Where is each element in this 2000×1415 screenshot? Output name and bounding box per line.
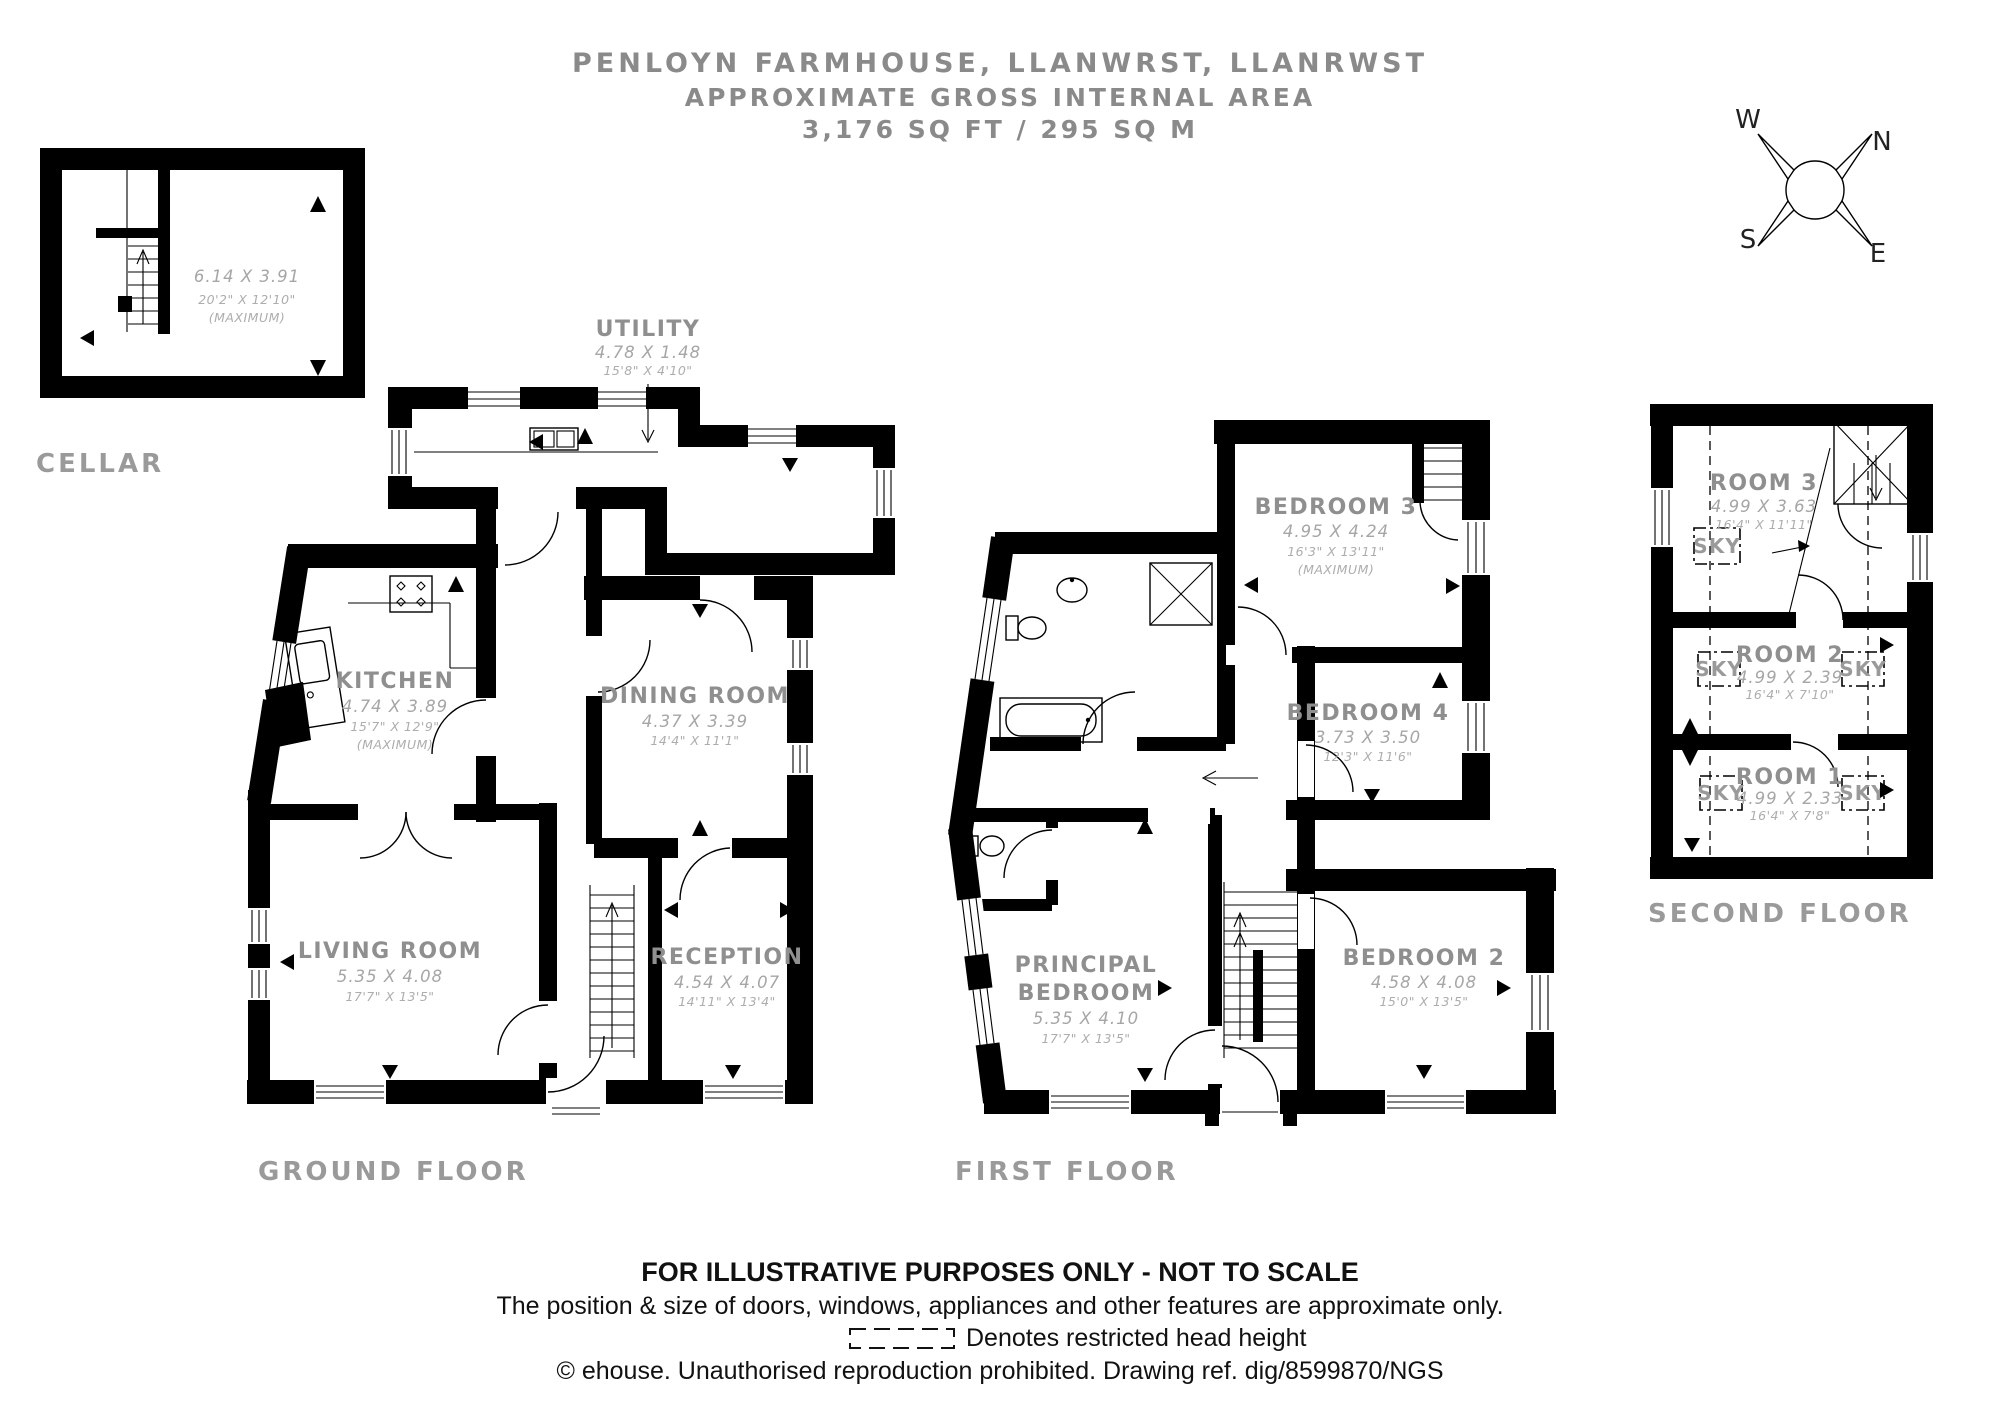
restricted-height-legend-icon: [850, 1329, 954, 1348]
header: PENLOYN FARMHOUSE, LLANWRST, LLANRWST AP…: [572, 48, 1428, 144]
compass-east: E: [1870, 239, 1886, 269]
first-floor-plan: BEDROOM 3 4.95 X 4.24 16'3" X 13'11" (MA…: [955, 420, 1556, 1187]
living-dim-imperial: 17'7" X 13'5": [345, 989, 434, 1004]
second-floor-plan: SKY SKY SKY SKY SKY ROOM 3 4.99 X 3.63 1…: [1648, 404, 1934, 929]
room1-dim-metric: 4.99 X 2.33: [1737, 789, 1843, 808]
bedroom4-label: BEDROOM 4: [1287, 701, 1450, 726]
compass-icon: W N S E: [1735, 105, 1892, 269]
room1-label: ROOM 1: [1736, 765, 1844, 790]
sink-icon: [1057, 578, 1087, 602]
bath-icon: [1000, 698, 1102, 742]
toilet-icon: [1006, 616, 1046, 640]
second-floor-label: SECOND FLOOR: [1648, 899, 1912, 929]
bedroom3-dim-note: (MAXIMUM): [1298, 562, 1375, 577]
bedroom3-stair-icon: [1412, 435, 1462, 503]
room3-label: ROOM 3: [1710, 471, 1818, 496]
first-stairs-icon: [1224, 882, 1297, 1058]
room1-dim-imperial: 16'4" X 7'8": [1750, 808, 1831, 823]
first-floor-label: FIRST FLOOR: [955, 1157, 1179, 1187]
room2-dim-imperial: 16'4" X 7'10": [1745, 687, 1834, 702]
footer-copyright: © ehouse. Unauthorised reproduction proh…: [556, 1357, 1443, 1385]
skylight-label-room1-r: SKY: [1839, 781, 1886, 805]
bedroom2-dim-imperial: 15'0" X 13'5": [1379, 994, 1468, 1009]
reception-dim-imperial: 14'11" X 13'4": [678, 994, 776, 1009]
cellar-dim-metric: 6.14 X 3.91: [194, 267, 300, 286]
kitchen-dim-metric: 4.74 X 3.89: [342, 697, 448, 716]
room2-label: ROOM 2: [1736, 643, 1844, 668]
compass-west: W: [1735, 105, 1761, 135]
page-title: PENLOYN FARMHOUSE, LLANWRST, LLANRWST: [572, 48, 1428, 79]
kitchen-dim-imperial: 15'7" X 12'9": [350, 719, 439, 734]
bedroom4-dim-imperial: 12'3" X 11'6": [1323, 749, 1412, 764]
cellar-dim-note: (MAXIMUM): [209, 310, 286, 325]
room2-dim-metric: 4.99 X 2.39: [1737, 668, 1843, 687]
principal-label-line2: BEDROOM: [1018, 981, 1155, 1006]
room3-dim-metric: 4.99 X 3.63: [1711, 497, 1817, 516]
kitchen-dim-note: (MAXIMUM): [357, 737, 434, 752]
reception-label: RECEPTION: [650, 945, 803, 970]
footer: FOR ILLUSTRATIVE PURPOSES ONLY - NOT TO …: [496, 1257, 1503, 1385]
kitchen-label: KITCHEN: [336, 669, 455, 694]
entry-arrow: [1203, 771, 1258, 785]
bedroom3-dim-metric: 4.95 X 4.24: [1283, 522, 1389, 541]
principal-dim-imperial: 17'7" X 13'5": [1041, 1031, 1130, 1046]
cellar-plan: 6.14 X 3.91 20'2" X 12'10" (MAXIMUM) CEL…: [36, 148, 365, 479]
dining-label: DINING ROOM: [600, 684, 790, 709]
second-stairs-icon: [1834, 422, 1912, 548]
kitchen-appliance-icon: [265, 682, 311, 748]
utility-dim-imperial: 15'8" X 4'10": [603, 363, 692, 378]
ground-floor-label: GROUND FLOOR: [258, 1157, 529, 1187]
dining-dim-metric: 4.37 X 3.39: [642, 712, 748, 731]
room3-dim-imperial: 16'4" X 11'11": [1715, 517, 1813, 532]
bedroom2-label: BEDROOM 2: [1343, 946, 1506, 971]
shower-icon: [1150, 563, 1212, 625]
footer-disclaimer: FOR ILLUSTRATIVE PURPOSES ONLY - NOT TO …: [641, 1257, 1359, 1287]
bedroom2-dim-metric: 4.58 X 4.08: [1371, 973, 1477, 992]
cellar-floor-label: CELLAR: [36, 449, 164, 479]
dining-dim-imperial: 14'4" X 11'1": [650, 733, 739, 748]
skylight-label-room2-r: SKY: [1839, 657, 1886, 681]
utility-label: UTILITY: [596, 317, 701, 342]
bedroom4-dim-metric: 3.73 X 3.50: [1315, 728, 1421, 747]
floorplan-drawing: PENLOYN FARMHOUSE, LLANWRST, LLANRWST AP…: [0, 0, 2000, 1415]
compass-north: N: [1872, 127, 1891, 157]
page-area: 3,176 SQ FT / 295 SQ M: [802, 115, 1198, 144]
principal-dim-metric: 5.35 X 4.10: [1033, 1009, 1139, 1028]
reception-dim-metric: 4.54 X 4.07: [674, 973, 780, 992]
living-dim-metric: 5.35 X 4.08: [337, 967, 443, 986]
bedroom3-label: BEDROOM 3: [1255, 495, 1418, 520]
footer-restricted-note: Denotes restricted head height: [966, 1324, 1307, 1352]
living-label: LIVING ROOM: [298, 939, 482, 964]
floorplan-page: PENLOYN FARMHOUSE, LLANWRST, LLANRWST AP…: [0, 0, 2000, 1415]
utility-dim-metric: 4.78 X 1.48: [595, 343, 701, 362]
skylight-label-room3: SKY: [1693, 534, 1740, 558]
page-subtitle: APPROXIMATE GROSS INTERNAL AREA: [685, 83, 1315, 112]
principal-label-line1: PRINCIPAL: [1015, 953, 1158, 978]
ground-stairs-icon: [590, 885, 634, 1058]
footer-approximate-note: The position & size of doors, windows, a…: [496, 1292, 1503, 1320]
bedroom3-dim-imperial: 16'3" X 13'11": [1287, 544, 1385, 559]
ground-floor-plan: UTILITY 4.78 X 1.48 15'8" X 4'10" KITCHE…: [244, 317, 897, 1187]
compass-south: S: [1740, 225, 1757, 255]
cellar-dim-imperial: 20'2" X 12'10": [198, 292, 296, 307]
